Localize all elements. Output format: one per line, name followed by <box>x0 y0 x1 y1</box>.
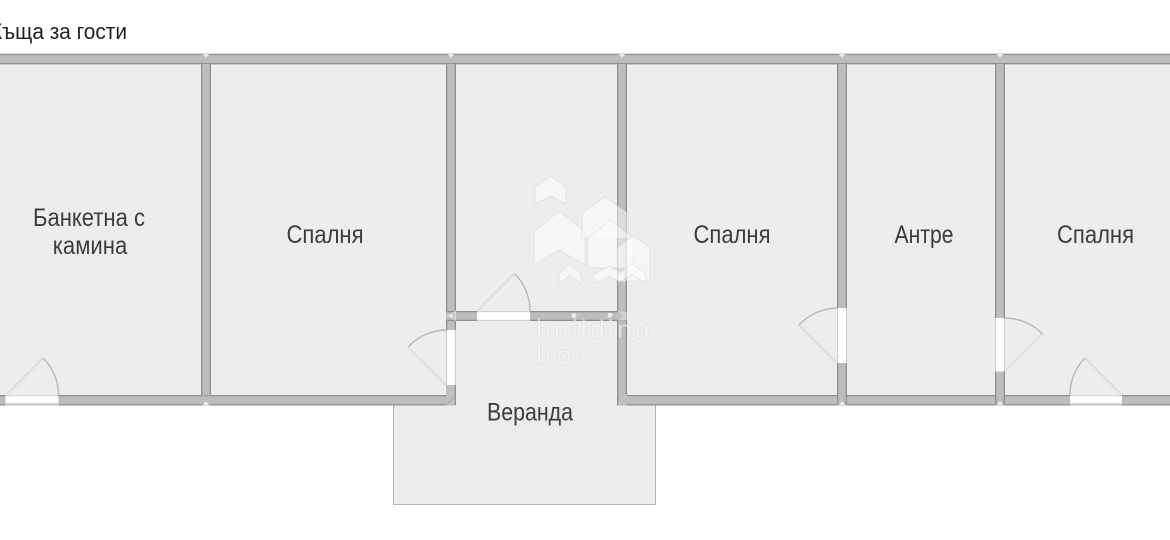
svg-text:box: box <box>536 340 597 370</box>
svg-text:Банкетна с: Банкетна с <box>33 204 145 232</box>
svg-text:Веранда: Веранда <box>487 399 573 427</box>
svg-text:Спалня: Спалня <box>694 221 771 249</box>
svg-text:Спалня: Спалня <box>1057 221 1134 249</box>
svg-text:камина: камина <box>53 232 128 260</box>
svg-text:Антре: Антре <box>895 221 954 249</box>
svg-text:Къща за гости: Къща за гости <box>0 19 127 44</box>
svg-text:Спалня: Спалня <box>287 221 364 249</box>
